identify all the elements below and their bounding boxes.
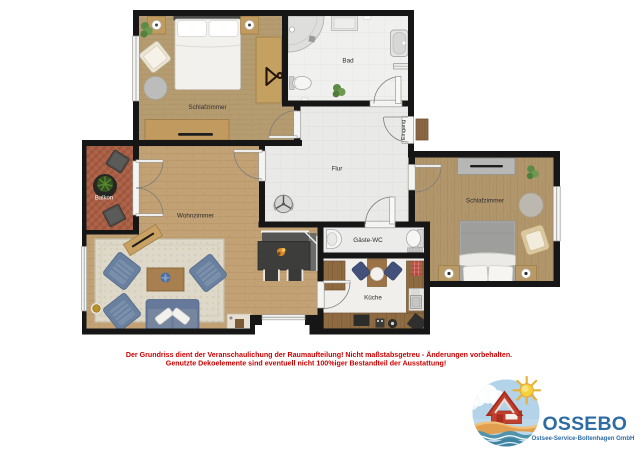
svg-text:Genutzte Dekoelemente sind eve: Genutzte Dekoelemente sind eventuell nic…	[166, 360, 446, 368]
svg-text:Schlafzimmer: Schlafzimmer	[188, 104, 226, 111]
svg-text:Balkon: Balkon	[95, 196, 113, 202]
svg-text:Schlafzimmer: Schlafzimmer	[466, 198, 504, 205]
svg-text:Eingang: Eingang	[401, 120, 407, 141]
svg-text:OSSEBO: OSSEBO	[543, 413, 628, 435]
svg-text:Der Grundriss dient der Verans: Der Grundriss dient der Veranschaulichun…	[126, 351, 512, 359]
svg-text:Küche: Küche	[364, 295, 382, 302]
svg-text:Bad: Bad	[342, 58, 354, 65]
svg-text:Ostsee-Service-Boltenhagen Gmb: Ostsee-Service-Boltenhagen GmbH	[532, 435, 635, 442]
svg-text:Wohnzimmer: Wohnzimmer	[177, 213, 214, 220]
svg-text:Gäste-WC: Gäste-WC	[353, 237, 383, 244]
svg-text:Flur: Flur	[332, 166, 343, 173]
